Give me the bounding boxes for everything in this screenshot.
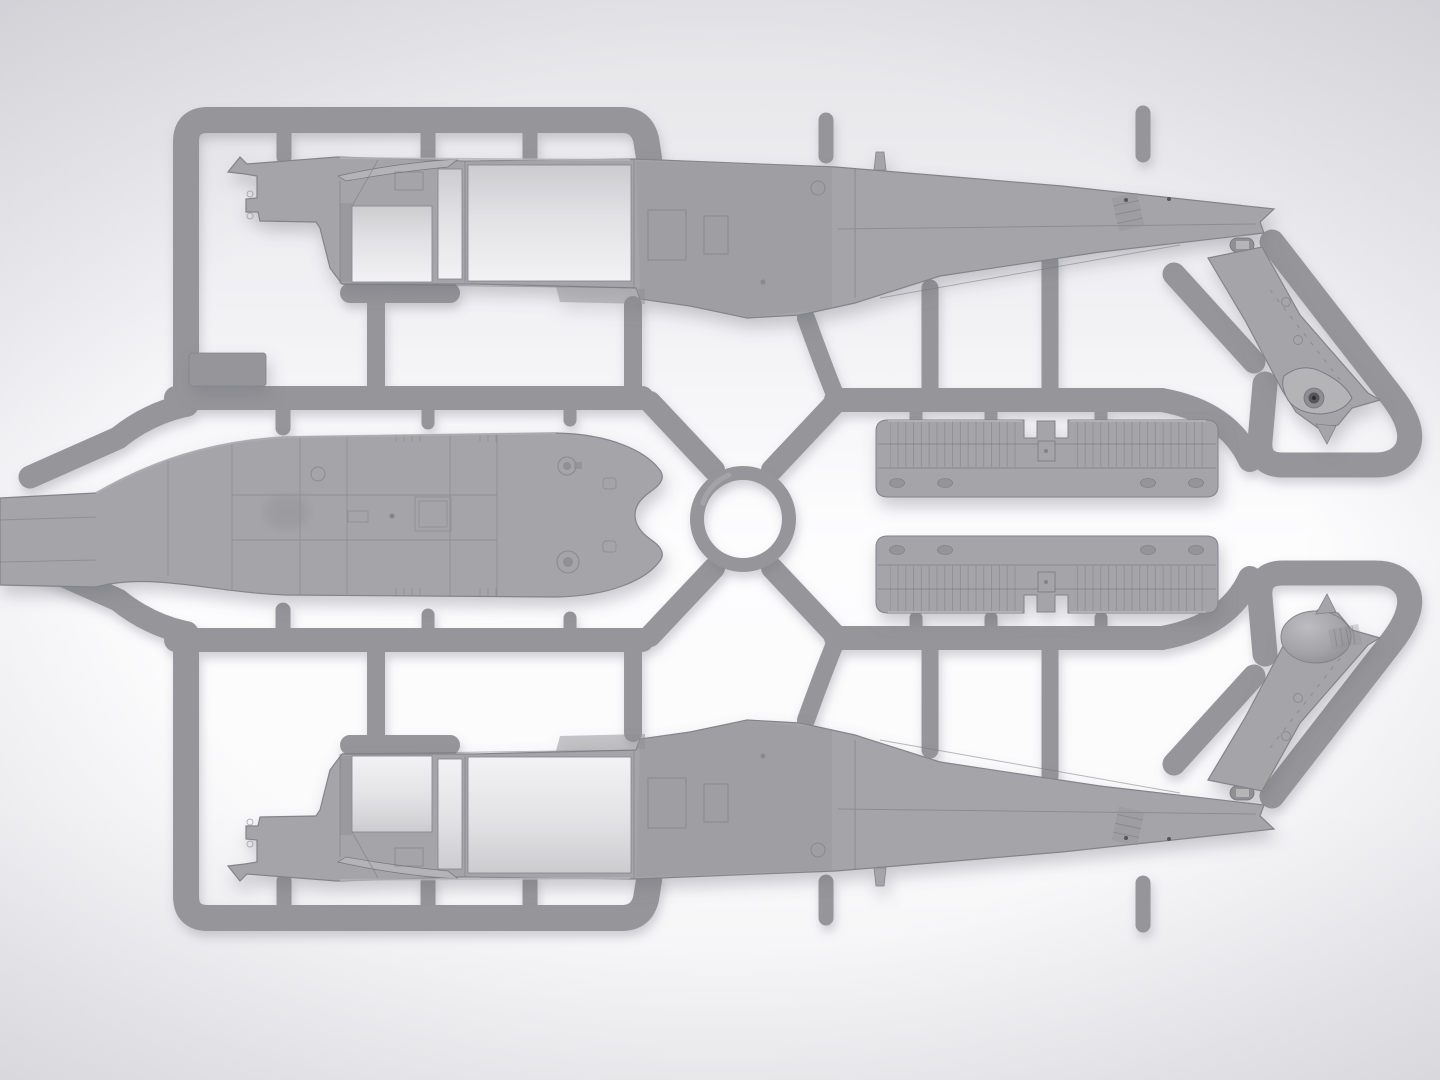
gearbox-eye-dot: [1312, 396, 1316, 400]
roof-shade-blob: [265, 495, 309, 529]
screenshot-root: Render of a light-gray injection-molded …: [0, 0, 1440, 1080]
engine-deck-upper: [876, 420, 1218, 497]
engine-deck-lower: [876, 536, 1218, 613]
sprue-render: [0, 0, 1440, 1080]
step-plate: [189, 353, 266, 386]
roof-dot: [390, 514, 395, 519]
